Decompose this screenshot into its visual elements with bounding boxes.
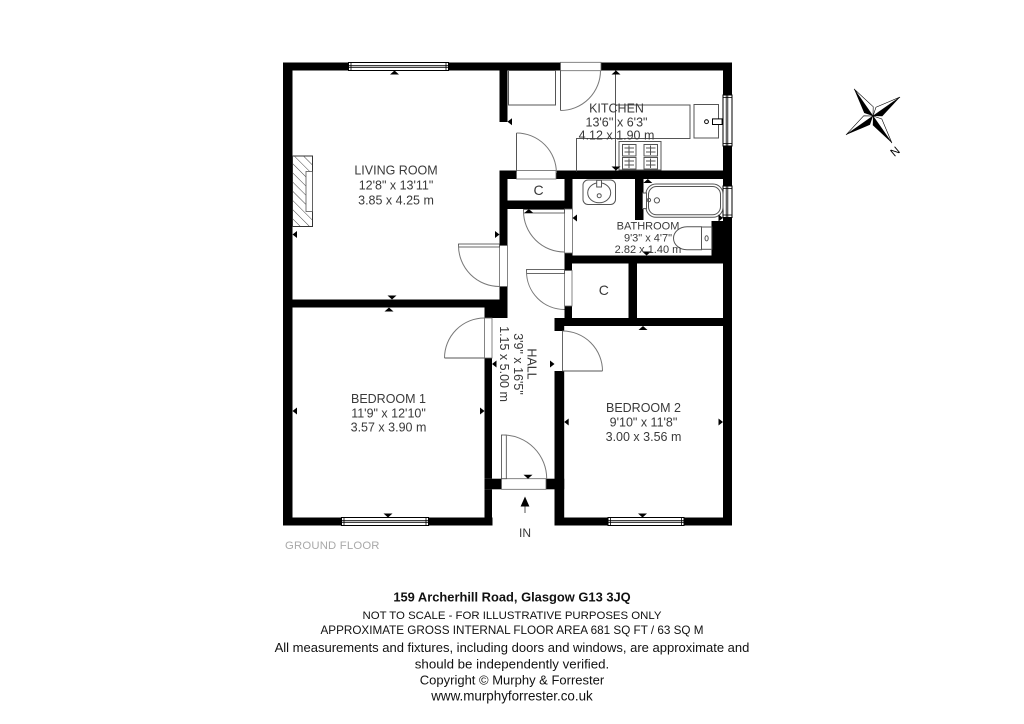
svg-text:BATHROOM: BATHROOM: [617, 221, 680, 233]
svg-text:12'8" x 13'11": 12'8" x 13'11": [359, 179, 434, 193]
svg-text:9'3" x 4'7": 9'3" x 4'7": [624, 232, 672, 244]
svg-text:13'6'' x 6'3": 13'6'' x 6'3": [586, 116, 648, 130]
svg-text:APPROXIMATE GROSS INTERNAL FLO: APPROXIMATE GROSS INTERNAL FLOOR AREA 68…: [321, 624, 704, 637]
svg-text:3.00 x 3.56 m: 3.00 x 3.56 m: [606, 430, 682, 444]
svg-text:C: C: [599, 282, 609, 298]
svg-text:2.82 x 1.40 m: 2.82 x 1.40 m: [615, 244, 682, 256]
svg-text:3.85 x 4.25 m: 3.85 x 4.25 m: [358, 194, 434, 208]
svg-text:C: C: [534, 182, 544, 198]
svg-text:KITCHEN: KITCHEN: [589, 102, 644, 116]
svg-text:BEDROOM 1: BEDROOM 1: [351, 392, 426, 406]
svg-text:GROUND FLOOR: GROUND FLOOR: [285, 540, 380, 552]
svg-text:Copyright © Murphy & Forrester: Copyright © Murphy & Forrester: [420, 673, 605, 688]
svg-text:159 Archerhill Road, Glasgow G: 159 Archerhill Road, Glasgow G13 3JQ: [393, 590, 630, 605]
svg-text:www.murphyforrester.co.uk: www.murphyforrester.co.uk: [430, 689, 593, 704]
svg-text:4.12 x 1.90 m: 4.12 x 1.90 m: [579, 129, 655, 143]
svg-text:NOT TO SCALE - FOR ILLUSTRATIV: NOT TO SCALE - FOR ILLUSTRATIVE PURPOSES…: [363, 610, 662, 622]
svg-text:IN: IN: [519, 526, 531, 540]
svg-text:3'9" x 16'5": 3'9" x 16'5": [511, 333, 525, 395]
svg-text:HALL: HALL: [525, 348, 539, 379]
svg-text:1.15 x 5.00 m: 1.15 x 5.00 m: [497, 326, 511, 402]
svg-text:LIVING ROOM: LIVING ROOM: [354, 164, 437, 178]
svg-text:All measurements and fixtures,: All measurements and fixtures, including…: [275, 640, 750, 655]
svg-text:9'10" x 11'8": 9'10" x 11'8": [610, 416, 678, 430]
svg-text:BEDROOM 2: BEDROOM 2: [606, 401, 681, 415]
svg-text:should be independently verifi: should be independently verified.: [415, 657, 609, 672]
svg-text:3.57 x 3.90 m: 3.57 x 3.90 m: [351, 421, 427, 435]
svg-text:11'9" x 12'10": 11'9" x 12'10": [351, 407, 426, 421]
